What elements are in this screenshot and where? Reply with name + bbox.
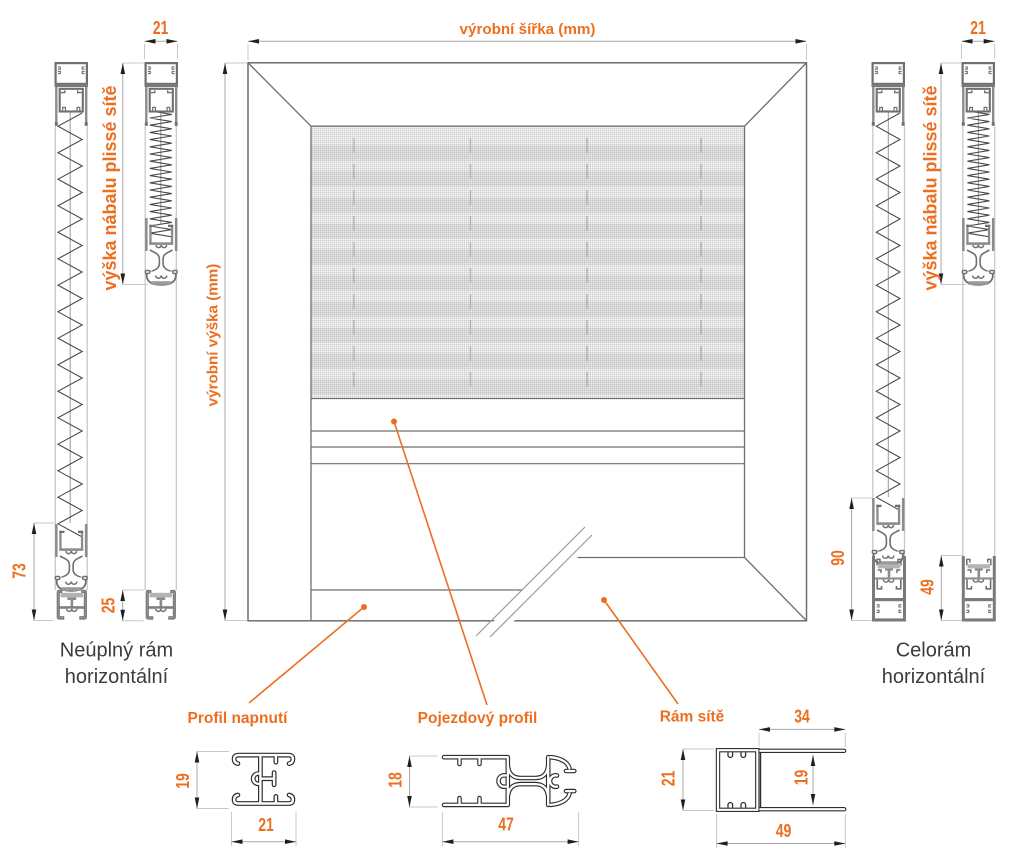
svg-text:Neúplný rám: Neúplný rám	[60, 639, 173, 661]
svg-text:Celorám: Celorám	[896, 639, 972, 661]
svg-text:horizontální: horizontální	[882, 666, 986, 688]
svg-text:výška nábalu plissé sítě: výška nábalu plissé sítě	[100, 85, 120, 290]
svg-text:Rám sítě: Rám sítě	[660, 709, 725, 726]
svg-text:34: 34	[794, 706, 810, 726]
svg-text:25: 25	[98, 598, 118, 614]
svg-text:výška nábalu plissé sítě: výška nábalu plissé sítě	[920, 85, 940, 290]
svg-text:18: 18	[385, 772, 405, 788]
svg-text:horizontální: horizontální	[65, 666, 169, 688]
svg-text:21: 21	[970, 18, 986, 38]
svg-text:19: 19	[791, 770, 811, 786]
svg-text:47: 47	[498, 814, 514, 834]
svg-text:výrobní šířka (mm): výrobní šířka (mm)	[460, 21, 596, 38]
svg-text:výrobní výška (mm): výrobní výška (mm)	[205, 264, 222, 407]
svg-text:73: 73	[9, 563, 29, 579]
svg-text:49: 49	[917, 579, 937, 595]
svg-text:90: 90	[828, 550, 848, 566]
svg-text:19: 19	[173, 773, 193, 789]
svg-text:Profil napnutí: Profil napnutí	[188, 710, 289, 727]
svg-text:49: 49	[776, 821, 792, 841]
svg-text:21: 21	[258, 815, 274, 835]
svg-text:21: 21	[153, 18, 169, 38]
svg-text:21: 21	[658, 771, 678, 787]
svg-text:Pojezdový profil: Pojezdový profil	[418, 710, 538, 727]
